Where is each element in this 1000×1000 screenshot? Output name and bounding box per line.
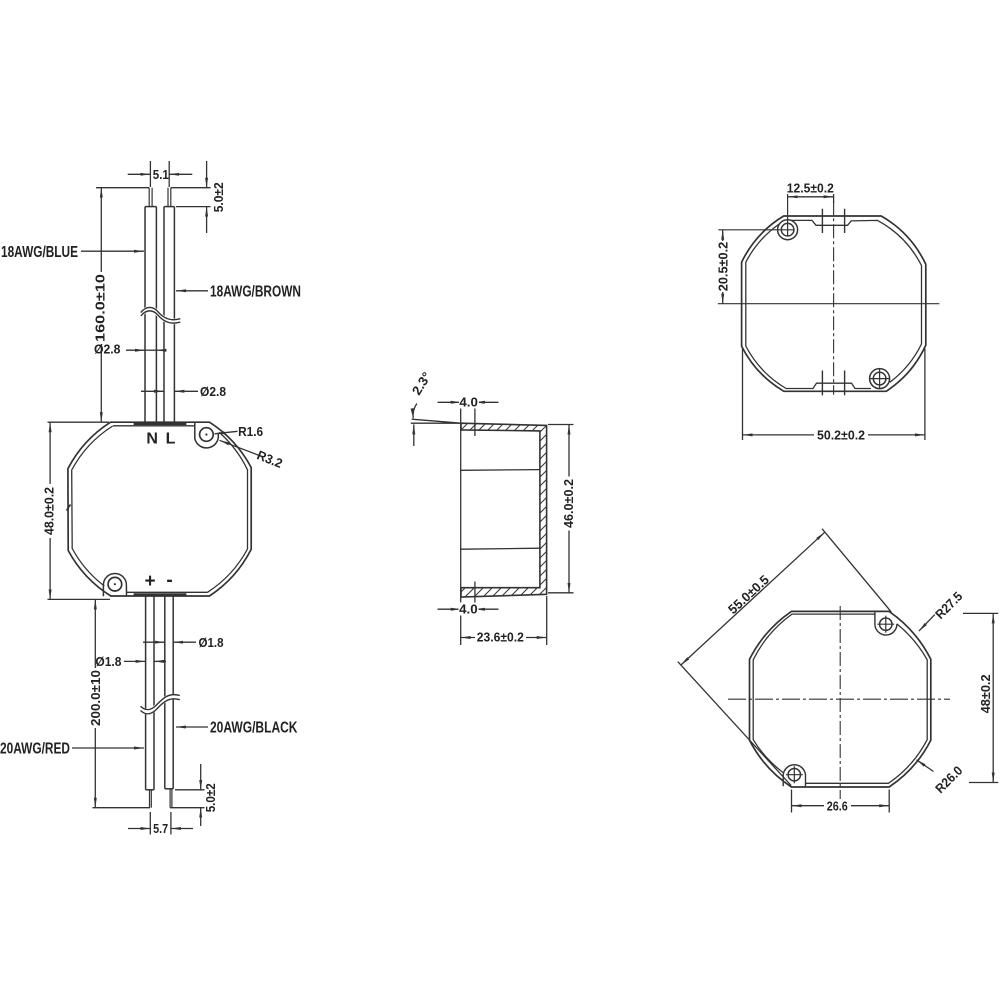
svg-text:50.2±0.2: 50.2±0.2: [817, 427, 865, 442]
svg-text:Ø1.8: Ø1.8: [95, 654, 121, 669]
svg-text:48±0.2: 48±0.2: [978, 674, 993, 713]
svg-text:26.6: 26.6: [827, 798, 848, 813]
svg-text:46.0±0.2: 46.0±0.2: [561, 479, 576, 528]
svg-text:5.1: 5.1: [153, 167, 169, 182]
svg-text:5.7: 5.7: [153, 821, 168, 836]
svg-text:160.0±10: 160.0±10: [93, 274, 108, 342]
svg-text:+: +: [144, 571, 155, 592]
svg-text:R1.6: R1.6: [238, 424, 263, 439]
svg-text:200.0±10: 200.0±10: [88, 670, 103, 726]
svg-text:Ø1.8: Ø1.8: [199, 635, 224, 650]
svg-text:18AWG/BROWN: 18AWG/BROWN: [210, 284, 301, 301]
svg-text:12.5±0.2: 12.5±0.2: [787, 181, 834, 196]
svg-text:5.0±2: 5.0±2: [203, 783, 218, 812]
svg-text:48.0±0.2: 48.0±0.2: [41, 487, 56, 535]
svg-text:4.0: 4.0: [459, 602, 478, 617]
svg-text:20AWG/RED: 20AWG/RED: [0, 741, 70, 758]
svg-text:4.0: 4.0: [459, 395, 478, 410]
svg-text:20AWG/BLACK: 20AWG/BLACK: [210, 720, 298, 737]
svg-text:Ø2.8: Ø2.8: [200, 384, 226, 399]
svg-text:-: -: [166, 570, 172, 591]
svg-text:N: N: [146, 430, 158, 447]
svg-text:5.0±2: 5.0±2: [211, 182, 226, 212]
svg-text:23.6±0.2: 23.6±0.2: [477, 629, 524, 644]
svg-text:L: L: [166, 430, 176, 447]
svg-text:18AWG/BLUE: 18AWG/BLUE: [1, 244, 78, 261]
svg-text:Ø2.8: Ø2.8: [94, 342, 121, 357]
svg-text:20.5±0.2: 20.5±0.2: [715, 242, 730, 292]
